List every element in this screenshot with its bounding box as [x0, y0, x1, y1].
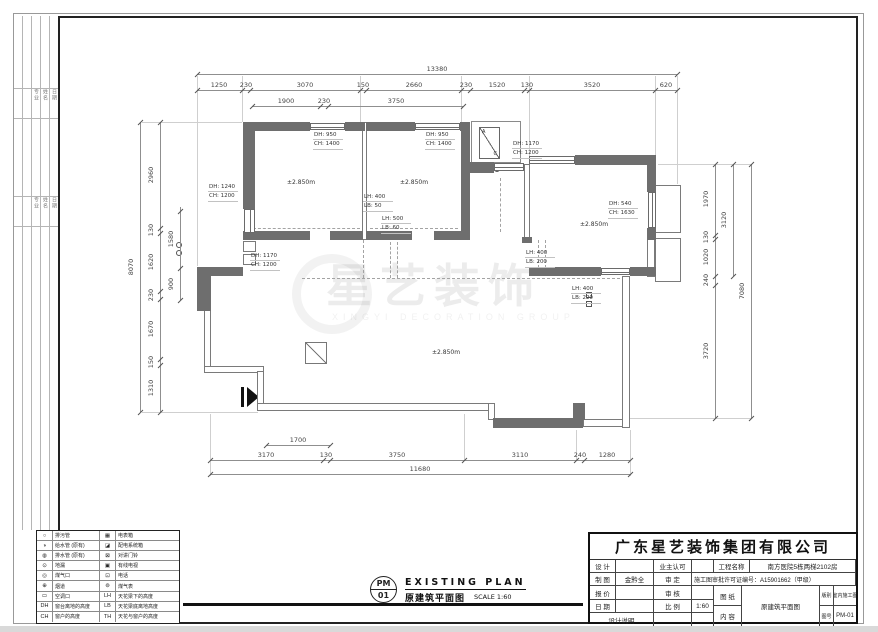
tb-project-value: 南方医院5栋两梯2102房 — [750, 560, 856, 573]
window — [648, 192, 656, 228]
dim-label: 3110 — [505, 451, 535, 459]
legend-label: 空调口 — [53, 592, 100, 601]
door-swing-icon — [305, 342, 327, 364]
tb-project-label: 工程名称 — [714, 560, 750, 573]
height-tag: LH: 400LB: 200 — [525, 249, 555, 268]
drawing-sheet: 星艺装饰 XINGYI DECORATION GROUP A C A C 133… — [0, 0, 878, 632]
tb-design-value — [616, 560, 654, 573]
height-tag-line: DH: 1170 — [512, 140, 542, 149]
beam-dashed-line — [397, 242, 398, 278]
height-tag-line: LH: 400 — [571, 285, 601, 294]
legend-symbol-icon: ⊠ — [100, 551, 116, 560]
height-tag-line: CH: 1630 — [608, 209, 638, 218]
dim-label: 1620 — [147, 247, 155, 277]
height-tag-line: DH: 1240 — [208, 183, 238, 192]
dim-label: 3170 — [251, 451, 281, 459]
legend-label: 地漏 — [53, 561, 100, 570]
wall-segment — [470, 162, 494, 173]
page-edge — [0, 626, 878, 632]
tb-audit-label: 审 核 — [654, 586, 692, 600]
legend-symbol-icon: ◑ — [37, 541, 53, 550]
dim-label: 3120 — [720, 205, 728, 235]
dim-label: 130 — [512, 81, 542, 89]
legend-symbol-icon: ◍ — [37, 551, 53, 560]
dimension-line — [160, 122, 161, 412]
beam-dashed-line — [363, 240, 364, 278]
height-tag-line: CH: 1200 — [512, 149, 542, 158]
floor-level-label: ±2.850m — [580, 221, 608, 228]
tb-quote-value — [616, 586, 654, 600]
dim-label: 130 — [147, 215, 155, 245]
height-tag-line: LH: 400 — [363, 193, 393, 202]
dim-label: 7080 — [738, 276, 746, 306]
legend-row: DH窗台离地的高度LB天花梁底离地高度 — [37, 602, 179, 612]
legend-row: ⊙地漏▣有线电视 — [37, 561, 179, 571]
window-midline — [250, 210, 251, 232]
dimension-tick — [749, 416, 755, 422]
dim-label: 1970 — [702, 184, 710, 214]
strip-label: 日期 — [49, 89, 58, 117]
height-tag: DH: 540CH: 1630 — [608, 200, 638, 219]
window-midline — [602, 272, 629, 273]
wall-segment — [460, 122, 470, 131]
tb-no-label: 图号 — [820, 606, 834, 626]
legend-label: 天花梁下的高度 — [116, 592, 178, 601]
legend-label: 配电系统箱 — [116, 541, 178, 550]
dim-label: 230 — [231, 81, 261, 89]
legend-label: 煤气表 — [116, 581, 178, 590]
extension-line — [658, 164, 752, 165]
dim-label: 1280 — [592, 451, 622, 459]
wall-segment — [573, 403, 585, 420]
window — [415, 123, 460, 130]
dimension-tick — [328, 443, 334, 449]
title-divider-line — [183, 603, 583, 606]
strip-label: 专业 — [31, 197, 40, 225]
legend-symbol-icon: ⊡ — [100, 571, 116, 580]
legend-symbol-icon: LB — [100, 602, 116, 611]
ac-unit-icon: A C — [479, 127, 500, 159]
thin-wall — [524, 164, 530, 238]
legend-label: 对讲门铃 — [116, 551, 178, 560]
dim-label: 3750 — [381, 97, 411, 105]
dimension-line — [733, 164, 734, 276]
legend-symbol-icon: ◪ — [100, 541, 116, 550]
height-tag-line: LB: 220 — [571, 294, 601, 303]
legend-row: ○排污管▦电表箱 — [37, 531, 179, 541]
dim-label: 3520 — [577, 81, 607, 89]
window — [601, 268, 630, 275]
tb-owner-label: 业主认可 — [654, 560, 692, 573]
dim-label: 1520 — [482, 81, 512, 89]
height-tag-line: LH: 400 — [525, 249, 555, 258]
legend-symbol-icon: ◎ — [37, 571, 53, 580]
height-tag-line: DH: 950 — [425, 131, 455, 140]
dim-label: 1580 — [167, 224, 175, 254]
dim-label: 1310 — [147, 373, 155, 403]
wall-segment — [243, 131, 255, 209]
legend-symbol-icon: ⊙ — [37, 561, 53, 570]
dim-label: 2960 — [147, 160, 155, 190]
dimension-tick — [628, 472, 634, 478]
window — [310, 123, 345, 130]
height-tag: LH: 400LB: 50 — [363, 193, 393, 212]
height-tag-line: LH: 500 — [381, 215, 411, 224]
strip-label: 姓名 — [40, 197, 49, 225]
dim-label: 1900 — [271, 97, 301, 105]
legend-label: 排污管 — [53, 531, 100, 540]
wall-segment — [461, 131, 470, 231]
thin-wall — [243, 241, 256, 252]
height-tag-line: DH: 1170 — [250, 252, 280, 261]
tb-type-label: 版别 — [820, 586, 834, 606]
tb-permit: 施工图审批许可证编号：A15901662（甲级） — [692, 573, 856, 586]
legend-row: CH窗户的高度TH天花与窗户的高度 — [37, 612, 179, 622]
legend-symbol-icon: DH — [37, 602, 53, 611]
drawing-scale: SCALE 1:60 — [474, 593, 512, 601]
tb-sheet-label-1: 图 纸 — [714, 586, 742, 606]
dimension-line — [140, 122, 141, 412]
height-tag: DH: 950CH: 1400 — [313, 131, 343, 150]
dim-label: 3070 — [290, 81, 320, 89]
legend-symbol-icon: ▭ — [37, 592, 53, 601]
fixture-circle-icon — [176, 242, 182, 248]
drawing-number-bottom: 01 — [371, 590, 396, 602]
drawing-title-cn: 原建筑平面图 — [405, 591, 465, 604]
dim-label: 13380 — [422, 65, 452, 73]
height-tag-line: LB: 60 — [381, 224, 411, 233]
tb-notes-label: 设计说明 — [590, 613, 654, 626]
extension-line — [677, 76, 678, 184]
height-tag: DH: 1170CH: 1200 — [512, 140, 542, 159]
dim-label: 1250 — [204, 81, 234, 89]
company-name: 广东星艺装饰集团有限公司 — [590, 534, 856, 560]
dimension-line — [266, 445, 330, 446]
legend-label: 窗台离地的高度 — [53, 602, 100, 611]
tb-audit-value — [692, 586, 714, 600]
dimension-line — [751, 164, 752, 418]
legend-row: ◍排水管 (原有)⊠对讲门铃 — [37, 551, 179, 561]
dim-label: 3750 — [382, 451, 412, 459]
dim-label: 2660 — [399, 81, 429, 89]
extension-line — [630, 430, 631, 476]
fixture-circle-icon — [176, 250, 182, 256]
height-tag: LH: 400LB: 220 — [571, 285, 601, 304]
dimension-line — [210, 474, 630, 475]
thin-wall — [257, 371, 264, 405]
legend-table: ○排污管▦电表箱◑给水管 (原有)◪配电系统箱◍排水管 (原有)⊠对讲门铃⊙地漏… — [36, 530, 180, 624]
window-midline — [530, 160, 574, 161]
tb-sheet-value: 原建筑平面图 — [742, 586, 820, 626]
beam-dashed-line — [390, 242, 391, 278]
wall-segment — [330, 231, 363, 240]
legend-symbol-icon: CH — [37, 612, 53, 622]
window-midline — [416, 127, 459, 128]
dimension-tick — [731, 274, 737, 280]
strip-label: 姓名 — [40, 89, 49, 117]
dimension-line — [210, 460, 630, 461]
dim-label: 230 — [451, 81, 481, 89]
ac-letter-c: C — [494, 151, 498, 157]
height-tag-line: CH: 1400 — [425, 140, 455, 149]
legend-label: 天花梁底离地高度 — [116, 602, 178, 611]
extension-line — [464, 414, 465, 460]
dim-label: 11680 — [405, 465, 435, 473]
height-tag: DH: 950CH: 1400 — [425, 131, 455, 150]
ac-letter-a: A — [482, 129, 485, 135]
height-tag-line: CH: 1400 — [313, 140, 343, 149]
tb-design-label: 设 计 — [590, 560, 616, 573]
tb-empty-cell — [692, 613, 714, 626]
legend-row: ◑给水管 (原有)◪配电系统箱 — [37, 541, 179, 551]
wall-segment — [522, 237, 532, 243]
beam-dashed-line — [248, 228, 360, 229]
dim-label: 230 — [147, 280, 155, 310]
legend-label: 有线电视 — [116, 561, 178, 570]
legend-row: ⊕烟道⊚煤气表 — [37, 581, 179, 591]
dim-label: 230 — [309, 97, 339, 105]
legend-symbol-icon: LH — [100, 592, 116, 601]
beam-dashed-line — [500, 178, 501, 232]
wall-segment — [197, 267, 243, 276]
thin-wall — [204, 366, 264, 373]
tb-quote-label: 报 价 — [590, 586, 616, 600]
wall-segment — [243, 122, 310, 131]
floor-level-label: ±2.850m — [432, 349, 460, 356]
extension-line — [630, 418, 752, 419]
height-tag: LH: 500LB: 60 — [381, 215, 411, 234]
beam-dashed-line — [302, 278, 620, 279]
wall-segment — [647, 228, 656, 240]
floor-level-label: ±2.850m — [400, 179, 428, 186]
window-midline — [311, 127, 344, 128]
wall-segment — [575, 155, 655, 165]
thin-wall — [622, 276, 630, 428]
tb-approve-label: 审 定 — [654, 573, 692, 586]
window — [244, 209, 255, 233]
legend-label: 电表箱 — [116, 531, 178, 540]
dimension-line — [197, 74, 677, 75]
title-block: 广东星艺装饰集团有限公司 设 计 业主认可 工程名称 南方医院5栋两梯2102房… — [588, 532, 858, 624]
wall-segment — [647, 267, 656, 276]
tb-draft-value: 金黔全 — [616, 573, 654, 586]
height-tag-line: DH: 950 — [313, 131, 343, 140]
drawing-number-top: PM — [371, 577, 396, 590]
tb-sheet-label-2: 内 容 — [714, 606, 742, 626]
legend-label: 电话 — [116, 571, 178, 580]
height-tag-line: LB: 200 — [525, 258, 555, 267]
legend-label: 给水管 (原有) — [53, 541, 100, 550]
dimension-line — [197, 90, 677, 91]
legend-symbol-icon: ▦ — [100, 531, 116, 540]
wall-segment — [529, 267, 601, 276]
dimension-line — [715, 164, 716, 418]
strip-label: 日期 — [49, 197, 58, 225]
legend-label: 排水管 (原有) — [53, 551, 100, 560]
strip-label: 专业 — [31, 89, 40, 117]
wall-segment — [434, 231, 470, 240]
thin-wall — [655, 185, 681, 233]
wall-segment — [345, 122, 365, 131]
dim-label: 240 — [702, 265, 710, 295]
dim-label: 1670 — [147, 314, 155, 344]
legend-symbol-icon: ○ — [37, 531, 53, 540]
legend-row: ▭空调口LH天花梁下的高度 — [37, 592, 179, 602]
dim-label: 620 — [651, 81, 681, 89]
dimension-line — [180, 207, 181, 300]
thin-wall — [362, 122, 367, 240]
extension-line — [142, 122, 242, 123]
tb-no-value: PM-01 — [834, 606, 856, 626]
extension-line — [210, 414, 211, 476]
wall-segment — [647, 155, 656, 192]
dimension-line — [252, 106, 463, 107]
tb-type-value: 室内施工图 — [834, 586, 856, 606]
height-tag-line: LB: 50 — [363, 202, 393, 211]
drawing-number-bubble: PM 01 — [370, 576, 397, 603]
height-tag: DH: 1240CH: 1200 — [208, 183, 238, 202]
legend-symbol-icon: ⊚ — [100, 581, 116, 590]
thin-wall — [257, 403, 495, 411]
dim-label: 3720 — [702, 336, 710, 366]
legend-row: ◎煤气口⊡电话 — [37, 571, 179, 581]
floor-level-label: ±2.850m — [287, 179, 315, 186]
drawing-title-en: EXISTING PLAN — [405, 577, 526, 590]
tb-scale-label: 比 例 — [654, 600, 692, 613]
tb-notes-value — [654, 613, 692, 626]
legend-symbol-icon: ▣ — [100, 561, 116, 570]
thin-wall — [655, 238, 681, 282]
entry-arrow-icon — [241, 387, 244, 407]
dim-label: 150 — [348, 81, 378, 89]
tb-date-label: 日 期 — [590, 600, 616, 613]
dim-label: 900 — [167, 269, 175, 299]
height-tag-line: DH: 540 — [608, 200, 638, 209]
wall-segment — [366, 122, 415, 131]
tb-owner-value — [692, 560, 714, 573]
thin-wall — [204, 309, 211, 370]
dim-label: 8070 — [127, 252, 135, 282]
dim-label: 1700 — [283, 436, 313, 444]
dim-label: 130 — [311, 451, 341, 459]
height-tag-line: CH: 1200 — [208, 192, 238, 201]
legend-symbol-icon: TH — [100, 612, 116, 622]
dim-label: 240 — [565, 451, 595, 459]
dimension-tick — [178, 298, 184, 304]
legend-label: 煤气口 — [53, 571, 100, 580]
legend-label: 窗户的高度 — [53, 612, 100, 622]
height-tag: DH: 1170CH: 1200 — [250, 252, 280, 271]
height-tag-line: CH: 1200 — [250, 261, 280, 270]
wall-segment — [493, 418, 583, 428]
tb-draft-label: 制 图 — [590, 573, 616, 586]
window — [494, 163, 524, 171]
legend-symbol-icon: ⊕ — [37, 581, 53, 590]
window-midline — [652, 193, 653, 227]
tb-scale-value: 1:60 — [692, 600, 714, 613]
legend-label: 天花与窗户的高度 — [116, 612, 178, 622]
extension-line — [197, 76, 198, 266]
legend-label: 烟道 — [53, 581, 100, 590]
window-midline — [495, 167, 523, 168]
tb-date-value — [616, 600, 654, 613]
